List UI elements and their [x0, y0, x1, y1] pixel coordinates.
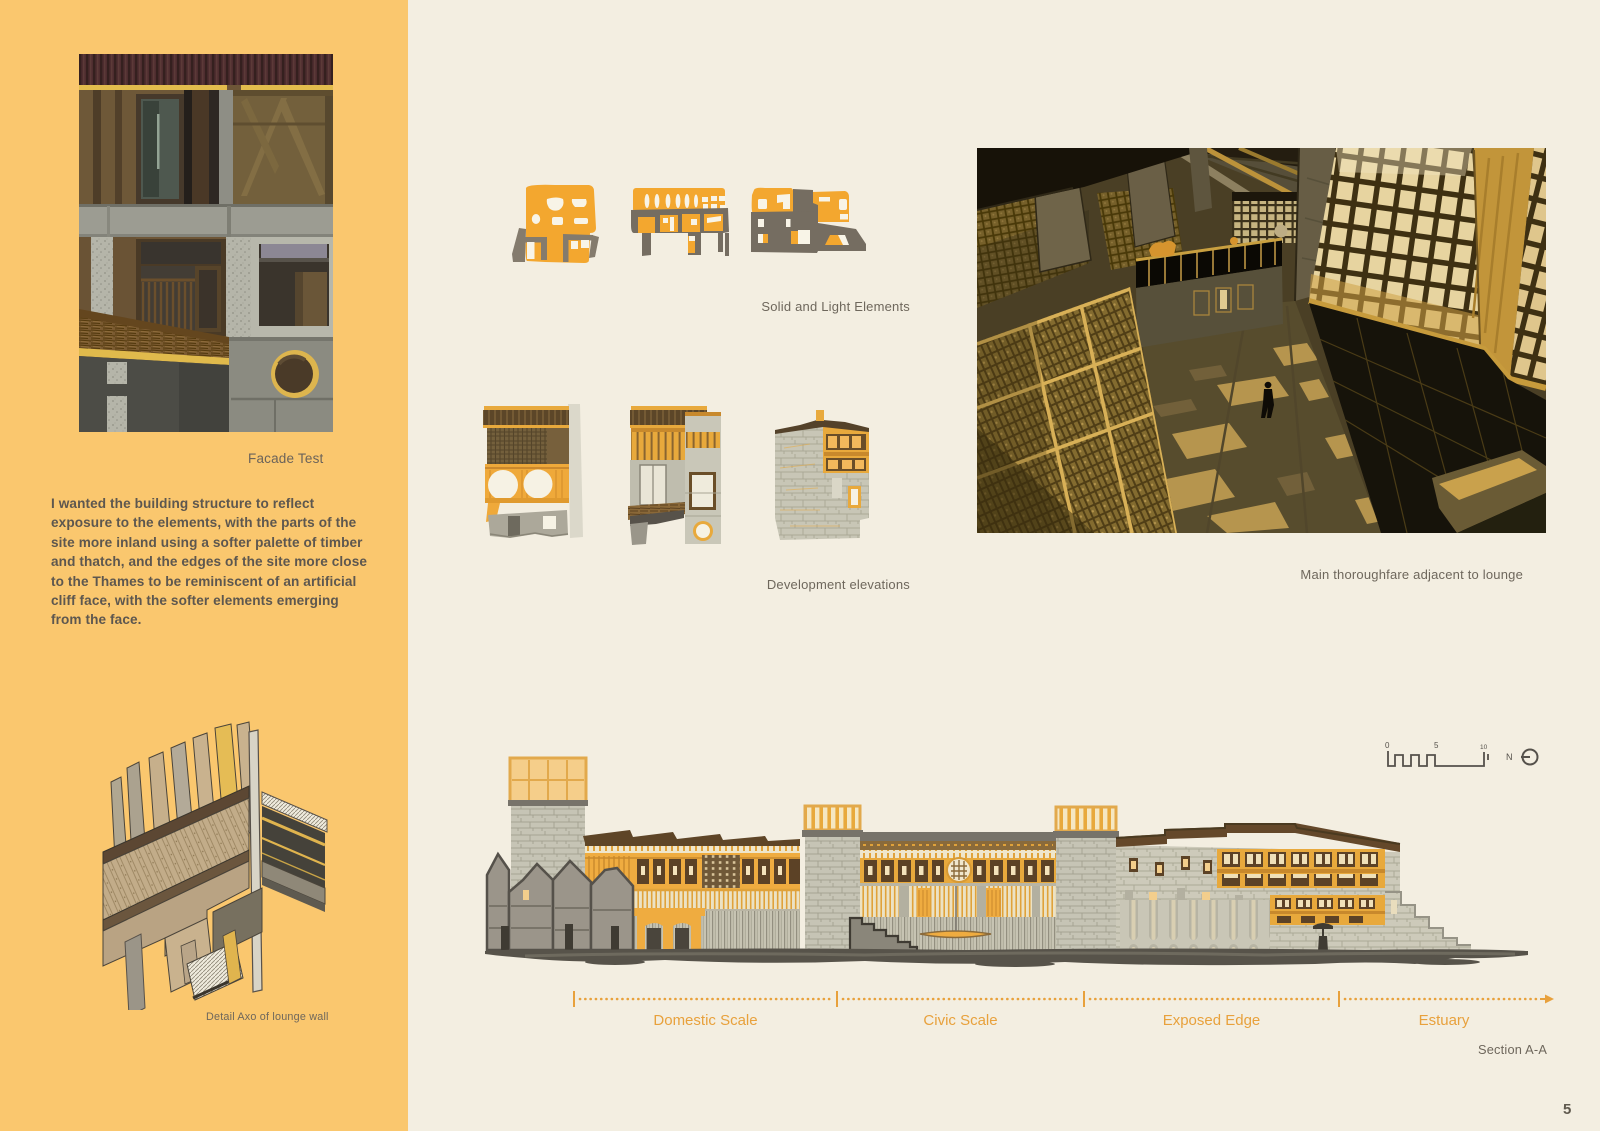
svg-text:10: 10	[1480, 744, 1488, 751]
svg-text:N: N	[1506, 752, 1513, 762]
svg-text:0: 0	[1385, 741, 1390, 750]
svg-text:5: 5	[1434, 741, 1439, 750]
